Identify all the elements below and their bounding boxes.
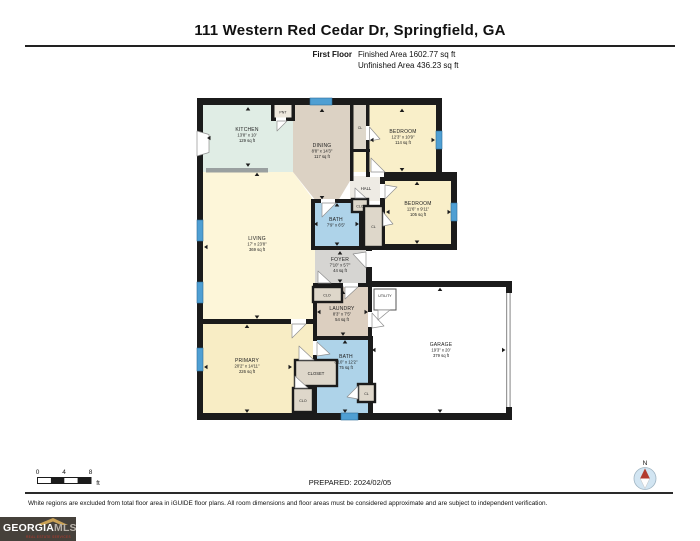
garage-area: 379 sq ft xyxy=(433,353,450,358)
floorplan-page: 111 Western Red Cedar Dr, Springfield, G… xyxy=(0,0,700,541)
footer-divider xyxy=(25,492,673,494)
clo-primary-label: CLO xyxy=(299,399,307,403)
primary-area: 226 sq ft xyxy=(239,369,256,374)
bedroom1-area: 114 sq ft xyxy=(395,140,412,145)
bedroom2-area: 105 sq ft xyxy=(410,212,427,217)
utility-label: UTILITY xyxy=(378,294,392,298)
bath2-area: 75 sq ft xyxy=(339,365,354,370)
compass-north-label: N xyxy=(643,460,648,467)
pantry-label: PNT xyxy=(279,111,287,115)
cl-bath2-label: CL xyxy=(364,392,369,396)
primary-dims: 20'2" x 14'11" xyxy=(235,364,260,369)
clo-hall-label: CLO xyxy=(356,205,364,209)
logo-brand: GEORGIAMLS xyxy=(3,522,77,534)
foyer-area: 44 sq ft xyxy=(333,268,348,273)
prepared-date: PREPARED: 2024/02/05 xyxy=(0,478,700,487)
clo-foyer-label: CLO xyxy=(323,294,331,298)
scale-label-4: 4 xyxy=(62,469,66,476)
closet-primary-label: CLOSET xyxy=(308,371,325,376)
bedroom2-dims: 11'6" x 9'11" xyxy=(407,207,430,212)
logo-brand-secondary: MLS xyxy=(54,522,77,534)
garage-dims: 19'3" x 20' xyxy=(431,348,450,353)
kitchen-counter xyxy=(206,168,268,173)
laundry-area: 54 sq ft xyxy=(335,317,350,322)
scale-label-8: 8 xyxy=(89,469,93,476)
bedroom1-dims: 12'3" x 10'9" xyxy=(392,135,415,140)
living-area: 369 sq ft xyxy=(249,247,266,252)
disclaimer-text: White regions are excluded from total fl… xyxy=(28,500,688,507)
dining-area: 117 sq ft xyxy=(314,154,331,159)
utility-box xyxy=(374,289,396,310)
kitchen-area: 129 sq ft xyxy=(239,138,256,143)
floor-plan-drawing: KITCHEN 13'8" x 10' 129 sq ft PNT DINING… xyxy=(0,0,700,541)
bath1-dims: 7'9" x 6'5" xyxy=(327,223,346,228)
kitchen-dims: 13'8" x 10' xyxy=(237,133,256,138)
laundry-dims: 8'3" x 7'5" xyxy=(333,312,352,317)
closet-top-label: CL xyxy=(358,126,363,130)
cl-bedroom2-label: CL xyxy=(371,225,376,229)
bath2-dims: 8'10" x 12'2" xyxy=(335,360,358,365)
scale-label-0: 0 xyxy=(36,469,40,476)
garage-door xyxy=(506,293,513,407)
logo-tagline: REAL ESTATE SERVICES xyxy=(26,535,71,539)
georgia-mls-logo: GEORGIAMLS REAL ESTATE SERVICES xyxy=(0,517,76,541)
logo-brand-primary: GEORGIA xyxy=(3,522,54,534)
foyer-dims: 7'10" x 5'7" xyxy=(330,263,351,268)
hall-label: HALL xyxy=(361,186,372,191)
living-dims: 17' x 23'8" xyxy=(247,242,267,247)
dining-dims: 8'8" x 14'3" xyxy=(312,149,333,154)
